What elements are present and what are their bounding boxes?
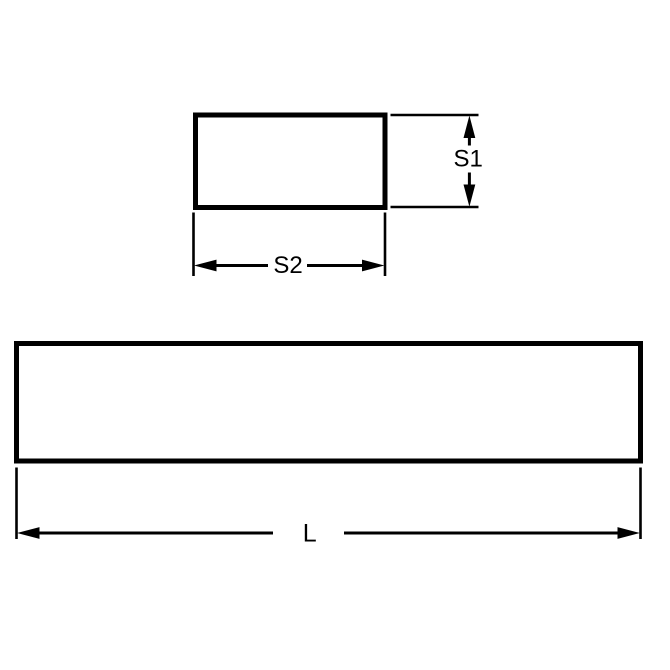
svg-text:L: L (303, 520, 317, 548)
svg-text:S1: S1 (454, 146, 483, 173)
svg-text:S2: S2 (273, 252, 302, 279)
